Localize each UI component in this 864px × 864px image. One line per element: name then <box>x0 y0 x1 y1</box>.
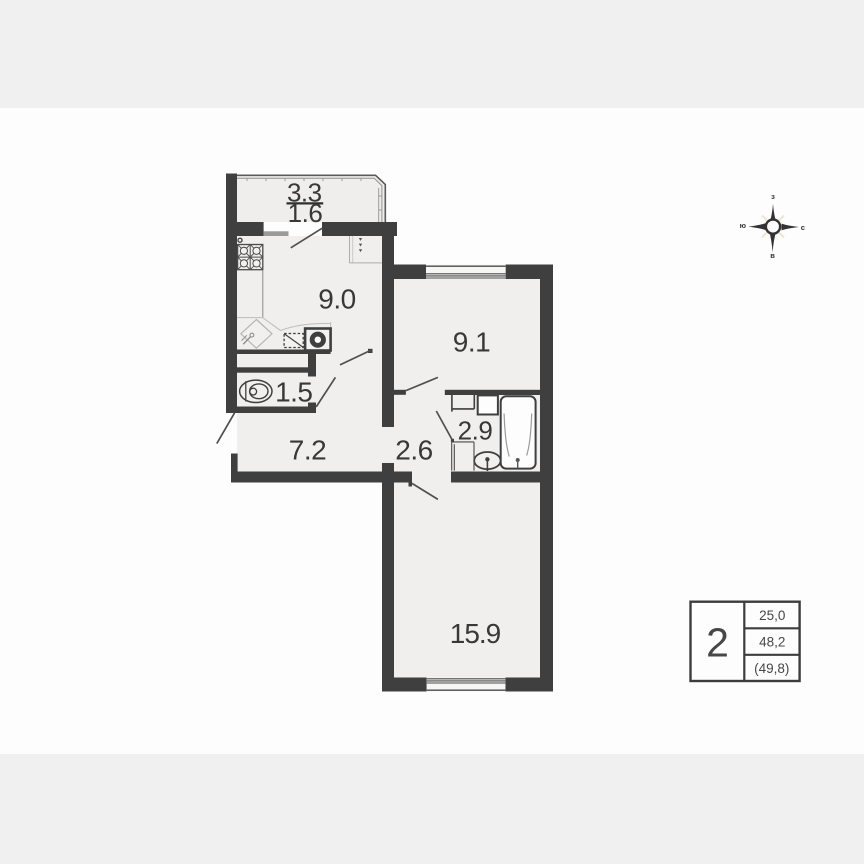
svg-text:з: з <box>771 192 775 201</box>
svg-text:2.6: 2.6 <box>395 434 432 465</box>
svg-text:1.6: 1.6 <box>288 198 323 228</box>
svg-text:25,0: 25,0 <box>759 608 785 623</box>
svg-text:48,2: 48,2 <box>759 634 785 649</box>
svg-text:15.9: 15.9 <box>450 618 501 649</box>
svg-text:в: в <box>770 251 775 260</box>
svg-text:(49,8): (49,8) <box>754 661 789 676</box>
svg-text:ю: ю <box>740 221 747 230</box>
svg-text:2.9: 2.9 <box>458 415 493 445</box>
svg-text:1.5: 1.5 <box>275 377 312 408</box>
svg-text:9.1: 9.1 <box>453 327 490 358</box>
svg-text:2: 2 <box>706 620 729 666</box>
svg-text:9.0: 9.0 <box>318 283 355 314</box>
svg-text:с: с <box>801 223 805 232</box>
svg-text:7.2: 7.2 <box>289 434 326 465</box>
